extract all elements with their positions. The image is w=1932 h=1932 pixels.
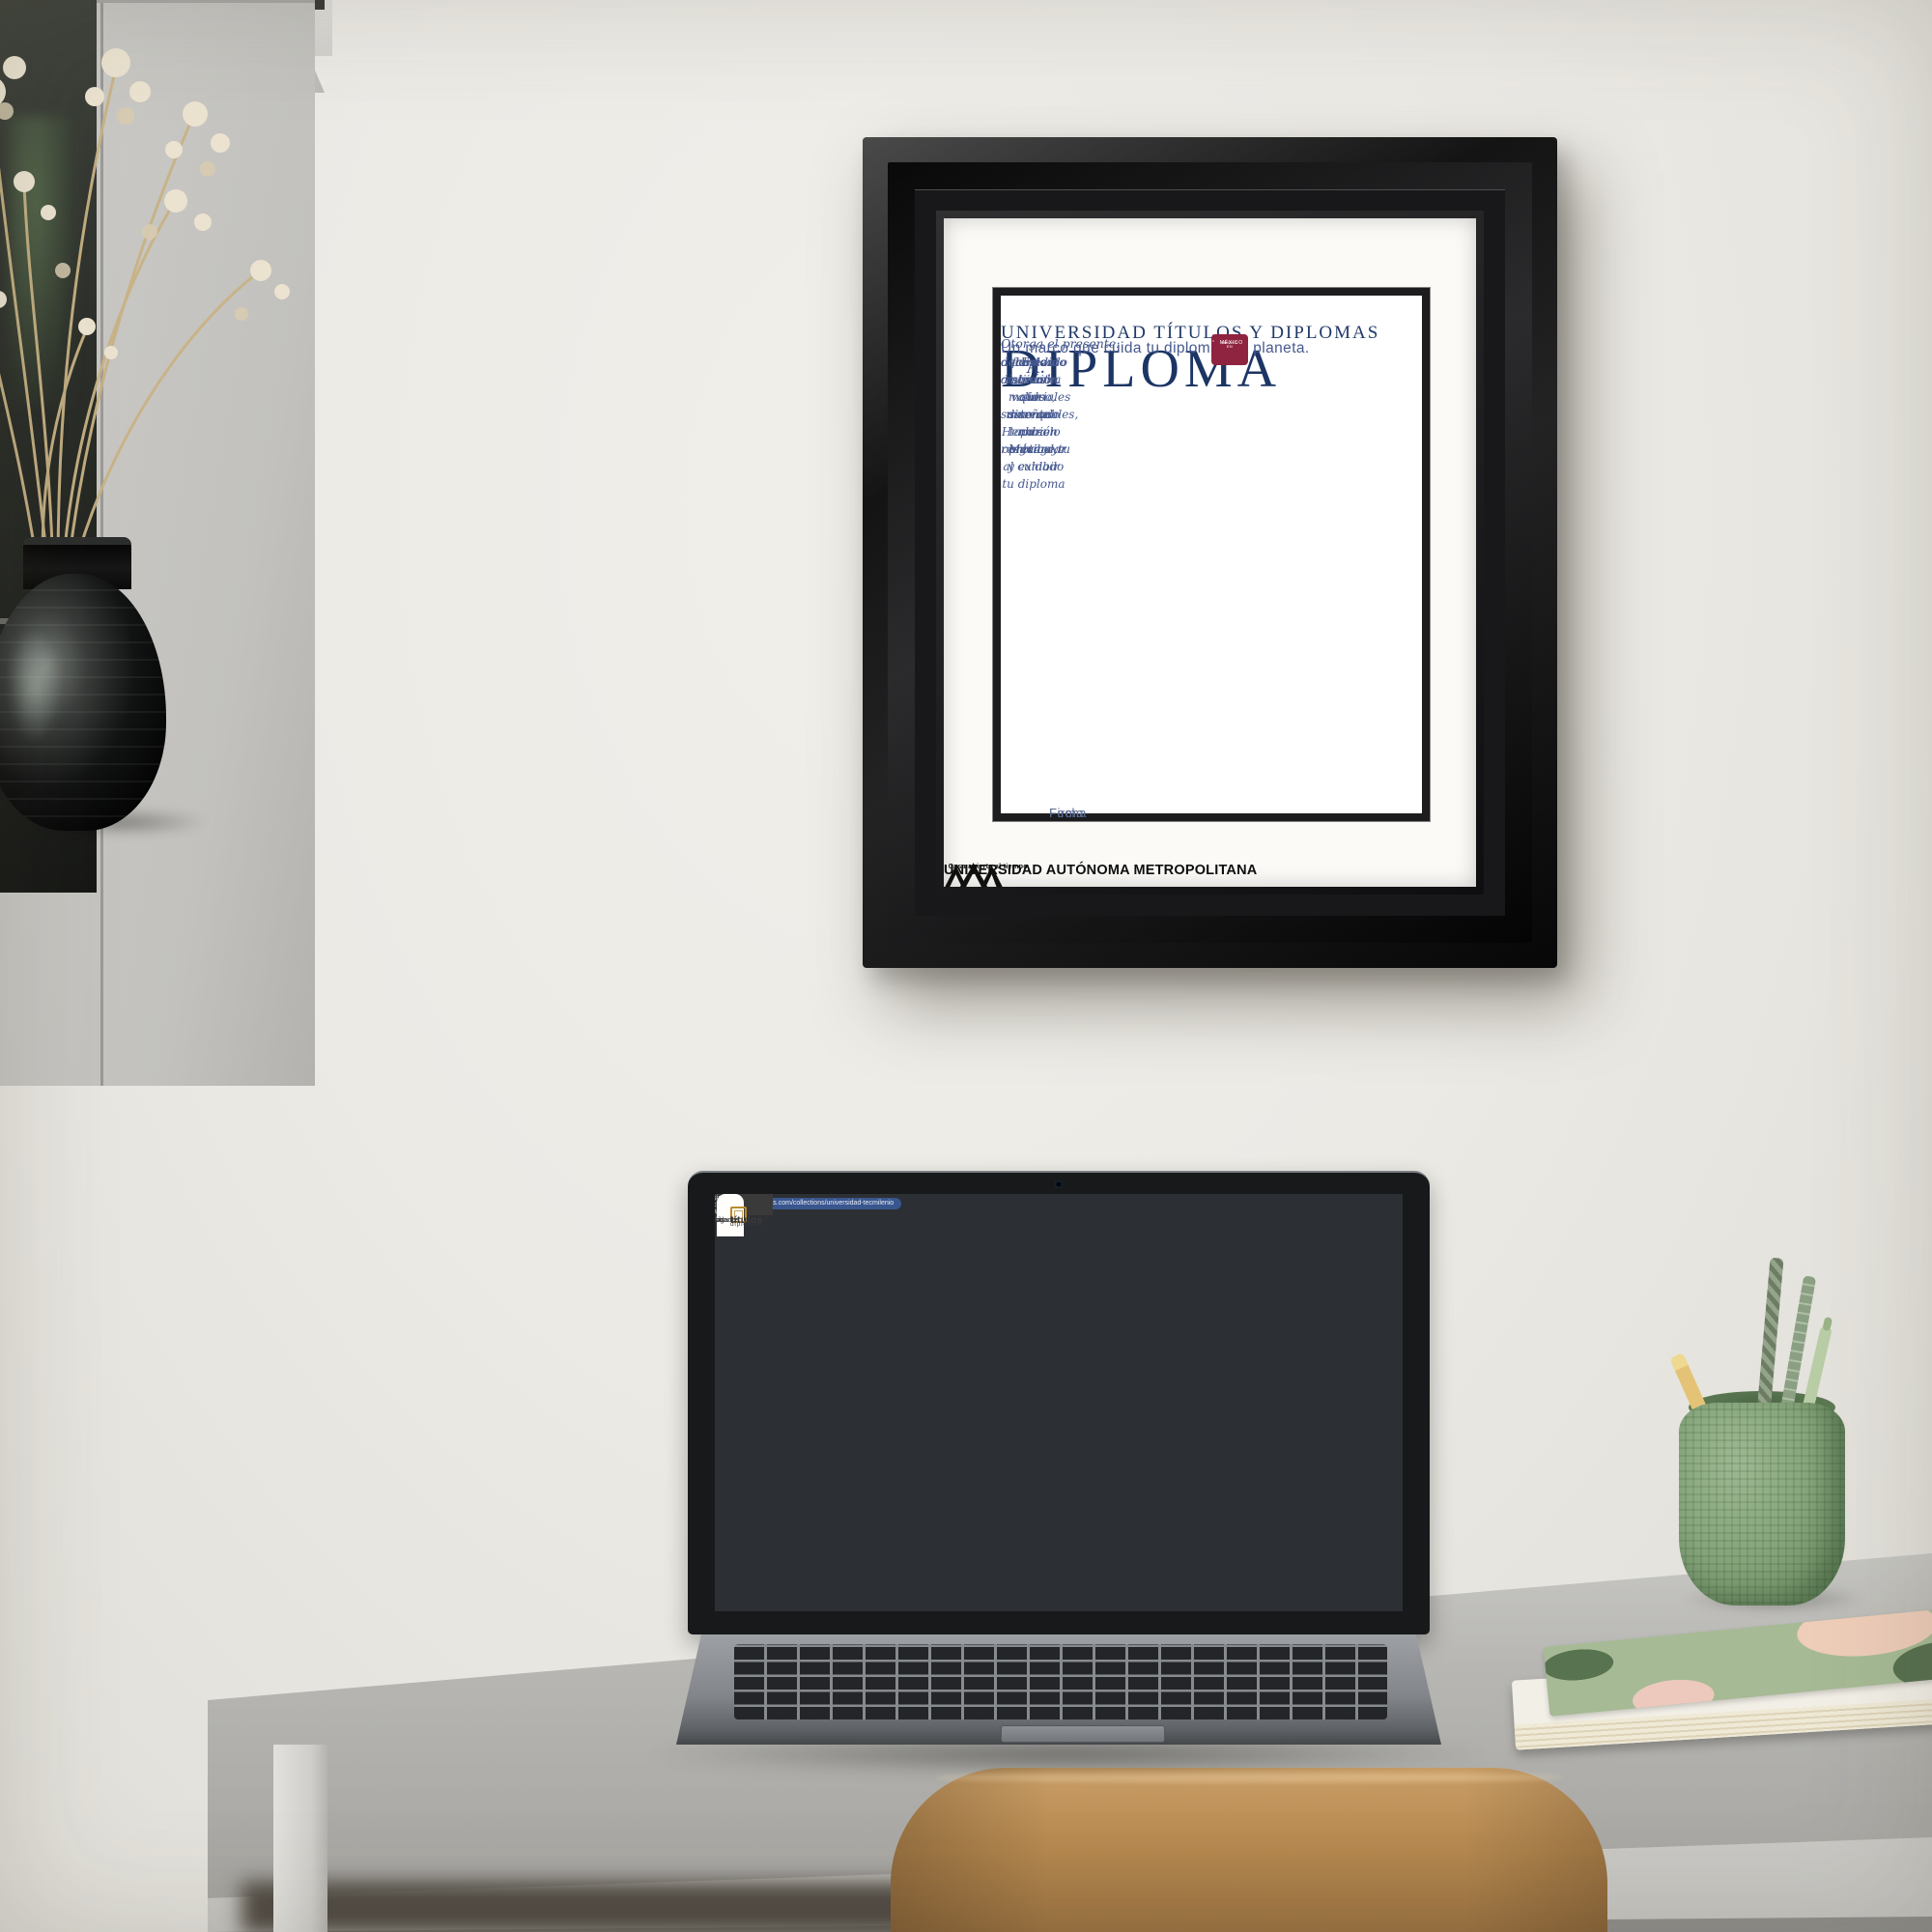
framed-diploma: UNIVERSIDAD TÍTULOS Y DIPLOMAS Otorga el…	[863, 137, 1557, 968]
uam-name: UNIVERSIDAD AUTÓNOMA METROPOLITANA	[944, 863, 1257, 878]
laptop-keyboard[interactable]	[734, 1644, 1387, 1719]
under-desk-shadow	[241, 1882, 937, 1932]
diploma-mat: UNIVERSIDAD TÍTULOS Y DIPLOMAS Otorga el…	[944, 218, 1476, 887]
diploma-tagline: Un marco que cuida tu diploma y el plane…	[1001, 340, 1310, 357]
wooden-chair	[891, 1768, 1607, 1932]
nav-blog[interactable]: Blog	[715, 1215, 724, 1224]
dried-flowers	[0, 0, 435, 599]
badge-eagle-icon: ≈	[1212, 340, 1215, 344]
laptop-trackpad[interactable]	[1001, 1725, 1165, 1743]
photo-scene: UNIVERSIDAD TÍTULOS Y DIPLOMAS Otorga el…	[0, 0, 1932, 1932]
vase-reflection	[8, 628, 62, 744]
webcam-icon	[1055, 1180, 1063, 1188]
pen-cup	[1679, 1403, 1845, 1605]
signature-label: Firma	[1049, 806, 1084, 820]
hecho-en-mexico-badge: HECHO EN ≈ MÉXICO	[1211, 334, 1248, 365]
body-line: del medio ambiente.	[1001, 354, 1060, 388]
laptop-screen: ‹ › ⟳ titulosydiplomas.com/collections/u…	[715, 1194, 1403, 1611]
desk-leg	[273, 1745, 327, 1932]
diploma-document: UNIVERSIDAD TÍTULOS Y DIPLOMAS Otorga el…	[993, 288, 1430, 821]
badge-bottom-text: MÉXICO	[1220, 340, 1243, 345]
store-header: títulos y diplomas Inicio Universidades …	[717, 1194, 744, 1236]
